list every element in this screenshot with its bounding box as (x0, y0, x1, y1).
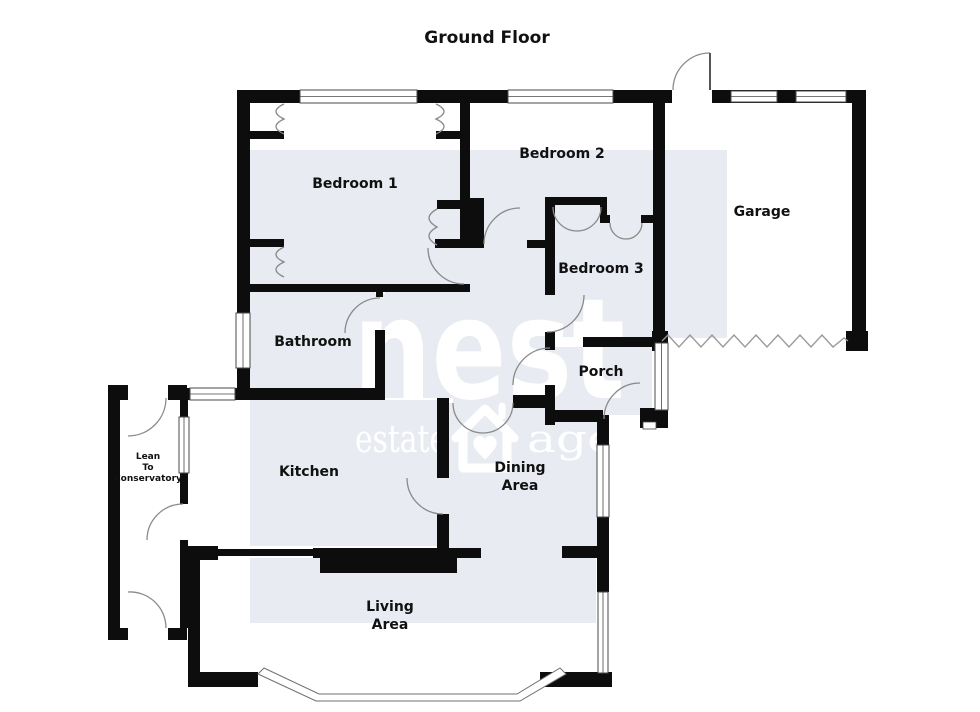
room-label-garage: Garage (734, 204, 791, 220)
room-label-conservatory-2: To (142, 463, 153, 473)
watermark-word-estate: estate (355, 417, 447, 461)
room-label-bedroom3: Bedroom 3 (558, 261, 644, 277)
room-label-conservatory-3: Conservatory (114, 474, 182, 484)
room-label-kitchen: Kitchen (279, 464, 339, 480)
page-title: Ground Floor (424, 28, 550, 48)
room-label-living-1: Living (366, 599, 414, 615)
floorplan-page: nest estate agents (0, 0, 980, 712)
room-label-bedroom2: Bedroom 2 (519, 146, 605, 162)
room-label-dining-2: Area (502, 478, 539, 494)
room-label-porch: Porch (578, 364, 623, 380)
room-label-bedroom1: Bedroom 1 (312, 176, 398, 192)
room-label-conservatory-1: Lean (136, 452, 160, 462)
room-label-dining-1: Dining (494, 460, 545, 476)
room-label-living-2: Area (372, 617, 409, 633)
room-label-bathroom: Bathroom (274, 334, 352, 350)
floorplan-canvas: nest estate agents (0, 0, 980, 712)
